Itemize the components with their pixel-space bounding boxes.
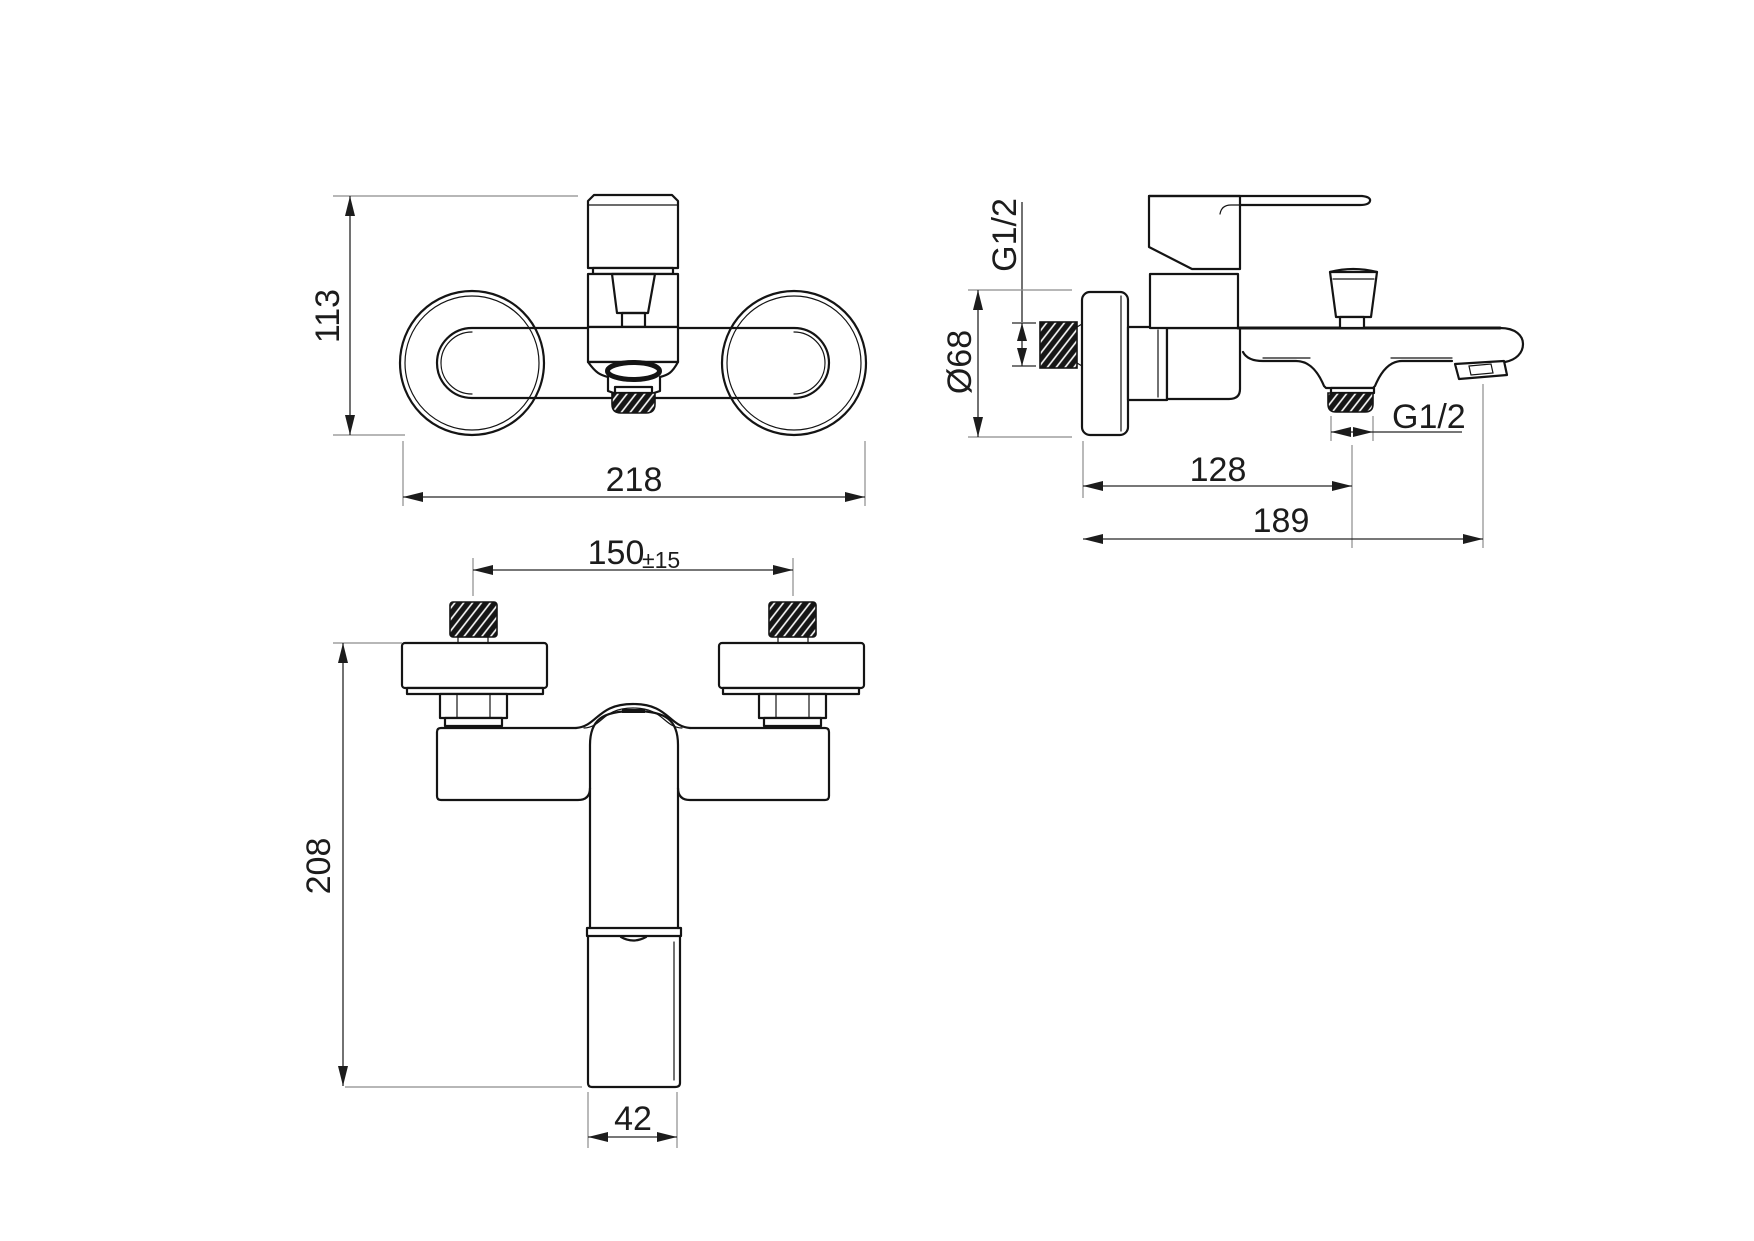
- left-nut-collar: [445, 718, 502, 726]
- left-hex-nut: [440, 694, 507, 718]
- shower-outlet-threads-top: [612, 393, 655, 413]
- spout-upper-bottomview: [590, 711, 678, 928]
- dim-width-218: 218: [403, 441, 865, 506]
- dim-g12-inlet-label: G1/2: [986, 198, 1024, 272]
- right-hex-nut: [759, 694, 826, 718]
- inlet-threads-side: [1040, 322, 1077, 368]
- dim-inlet-spacing: 150 ±15: [473, 534, 793, 596]
- spout-mouth-arc: [621, 937, 646, 941]
- dim-wall-to-outlet: 128: [1083, 441, 1352, 548]
- left-flange-circle-inner: [405, 296, 539, 430]
- side-view: G1/2 Ø68 G1/2 128: [941, 196, 1523, 548]
- handle-dome-side: [1149, 196, 1240, 269]
- cartridge-housing-top: [588, 274, 678, 327]
- valve-body-top: [588, 327, 678, 362]
- aerator-side: [1455, 361, 1507, 379]
- faucet-technical-drawing: 113 218: [0, 0, 1754, 1241]
- aerator-side-inner: [1469, 364, 1493, 375]
- dim-189-label: 189: [1253, 502, 1310, 540]
- dim-g12-outlet-label: G1/2: [1392, 398, 1466, 436]
- right-flange-circle-inner: [727, 296, 861, 430]
- left-inlet-threads: [450, 602, 497, 637]
- spout-lower-bottomview: [588, 936, 680, 1087]
- left-flange-circle: [400, 291, 544, 435]
- spout-joint-band: [587, 928, 681, 936]
- dim-113-label: 113: [309, 289, 347, 343]
- hex-nut-side: [1128, 327, 1167, 400]
- dim-68-label: Ø68: [941, 330, 979, 394]
- technical-drawing-page: 113 218: [0, 0, 1754, 1241]
- outlet-collar-top: [615, 387, 652, 393]
- dim-150-tolerance-label: ±15: [642, 547, 680, 573]
- dim-150-label: 150: [588, 534, 645, 572]
- diverter-stem-side: [1340, 317, 1364, 328]
- dim-218-label: 218: [606, 461, 663, 499]
- bottom-view: 150 ±15 208 42: [300, 534, 864, 1148]
- body-bar-right: [678, 728, 829, 800]
- right-inlet-threads: [769, 602, 816, 637]
- body-bar-left: [437, 728, 590, 800]
- dim-128-label: 128: [1190, 451, 1247, 489]
- cartridge-housing-side: [1150, 274, 1238, 328]
- top-view: 113 218: [309, 195, 866, 506]
- right-flange-bottomview: [719, 643, 864, 688]
- right-nut-collar: [764, 718, 821, 726]
- dim-inlet-thread: G1/2: [986, 198, 1036, 366]
- dim-height-113: 113: [309, 196, 578, 435]
- dim-42-label: 42: [614, 1100, 652, 1138]
- outlet-threads-side: [1328, 393, 1373, 412]
- left-flange-bottomview: [402, 643, 547, 688]
- handle-top: [588, 195, 678, 268]
- dim-208-label: 208: [300, 838, 338, 895]
- valve-block-side: [1167, 328, 1240, 399]
- spout-end-cap: [1500, 328, 1523, 362]
- right-flange-circle: [722, 291, 866, 435]
- dim-spout-width: 42: [588, 1092, 677, 1148]
